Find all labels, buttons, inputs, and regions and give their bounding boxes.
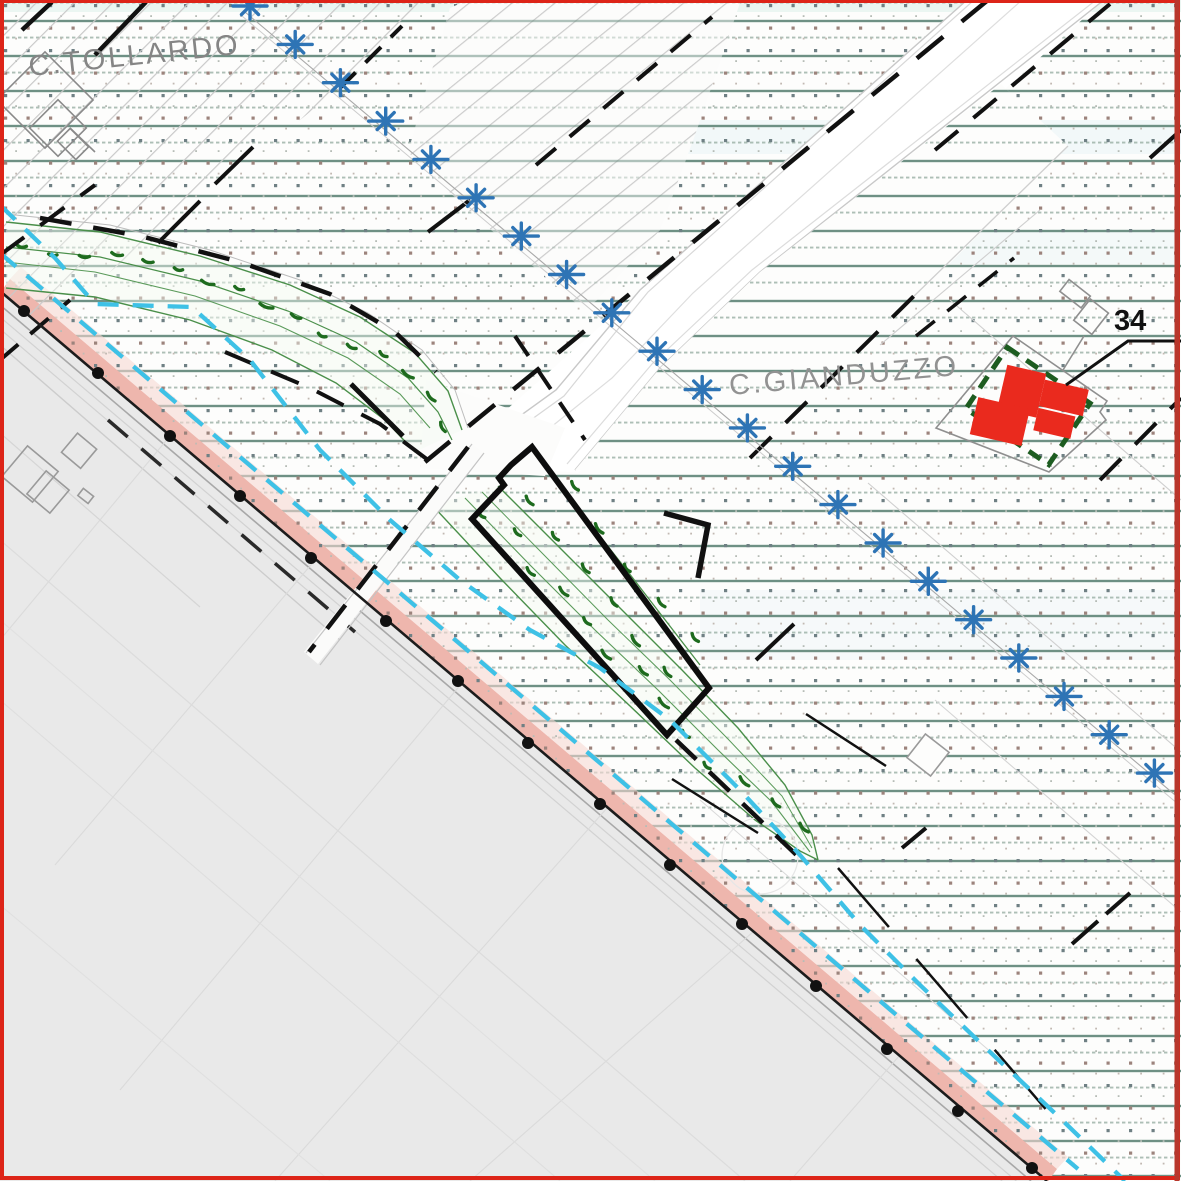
svg-text:34: 34 xyxy=(1114,305,1146,337)
